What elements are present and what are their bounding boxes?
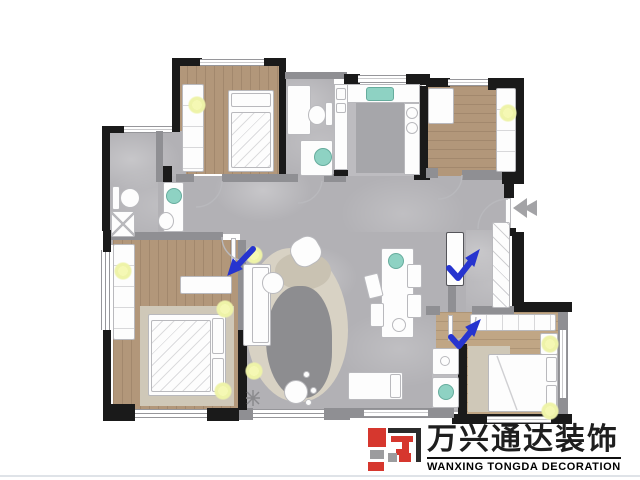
logo-divider-line (427, 457, 621, 459)
washing-machine (111, 211, 135, 237)
window (358, 75, 408, 83)
wall-segment (426, 168, 438, 178)
stove-burner (406, 107, 418, 119)
dresser (180, 276, 232, 294)
wall-segment (103, 404, 135, 421)
wall-segment (458, 344, 467, 416)
bed-pillow (212, 318, 224, 354)
toilet-bowl (120, 188, 140, 208)
ceiling-light-glow (114, 262, 132, 280)
logo-red-square (368, 462, 384, 471)
wall-segment (504, 182, 514, 198)
wall-segment (103, 330, 111, 406)
bed-pillow (546, 357, 557, 382)
wall-segment (426, 306, 440, 315)
tv-bench-end-unit (390, 374, 401, 398)
window (448, 79, 490, 86)
wall-segment (222, 174, 286, 182)
wall-segment (102, 127, 110, 231)
vanity-sink (314, 148, 332, 166)
master-door-leaf (231, 238, 236, 264)
logo-text-block: 万兴通达装饰 WANXING TONGDA DECORATION (427, 424, 621, 473)
company-logo: 万兴通达装饰 WANXING TONGDA DECORATION (368, 424, 636, 476)
sink-faucet (440, 356, 450, 366)
logo-side-squares (368, 428, 386, 471)
window (364, 409, 428, 417)
wall-segment (286, 174, 298, 182)
coffee-table (262, 272, 284, 294)
daybed (428, 88, 454, 124)
table-plant (388, 253, 404, 269)
ceiling-light-glow (216, 300, 234, 318)
dining-chair (407, 294, 422, 318)
bedroom-door-leaf (448, 315, 453, 341)
ceiling-light-glow (499, 104, 517, 122)
toilet-tank (325, 102, 333, 126)
kitchen-island (356, 103, 404, 173)
dining-chair (407, 264, 422, 288)
page-bottom-line (0, 475, 640, 477)
window (200, 59, 264, 66)
table-bowl (392, 318, 406, 332)
logo-mark-gray-square (388, 453, 397, 462)
toilet-bowl (308, 105, 326, 125)
wall-segment (102, 126, 124, 133)
kitchen-sink (366, 87, 394, 101)
built-in-oven (336, 88, 346, 100)
window (134, 409, 207, 418)
window (559, 330, 567, 398)
dining-chair (370, 303, 384, 327)
basin (158, 212, 174, 230)
logo-mark-icon (388, 428, 421, 462)
wardrobe (496, 88, 516, 172)
bed-blanket (231, 112, 271, 168)
decor-dot (310, 387, 317, 394)
company-name-english: WANXING TONGDA DECORATION (427, 461, 621, 473)
ceiling-light-glow (541, 335, 559, 353)
stove-burner (406, 122, 418, 134)
logo-mark-red-square (399, 453, 411, 462)
floor-plan-image: 万兴通达装饰 WANXING TONGDA DECORATION (0, 0, 640, 480)
wall-segment (163, 166, 172, 182)
bed-blanket (151, 320, 211, 392)
logo-red-square (368, 428, 386, 447)
window (252, 409, 324, 418)
ceiling-light-glow (541, 402, 559, 420)
wardrobe (470, 314, 556, 331)
wall-segment (426, 78, 450, 87)
wall-segment (512, 302, 572, 312)
wall-segment (172, 58, 202, 66)
logo-mark-right-bar (416, 428, 421, 462)
wash-basin (166, 188, 182, 204)
decor-dot (303, 371, 310, 378)
entrance-direction-icon (513, 198, 537, 218)
wall-segment (172, 58, 180, 132)
wardrobe (113, 244, 135, 340)
wall-segment (207, 408, 239, 421)
wall-segment (512, 232, 524, 310)
ceiling-light-glow (245, 246, 263, 264)
hallway-cabinet (446, 232, 464, 286)
wall-segment (420, 86, 428, 170)
ceiling-light-glow (188, 96, 206, 114)
hallway-floor (158, 176, 508, 234)
wall-segment (516, 88, 524, 170)
wall-segment (176, 174, 194, 182)
toilet-tank (112, 186, 120, 210)
wall-segment (324, 408, 350, 420)
window (124, 126, 172, 133)
wall-segment (285, 72, 347, 79)
entry-shoe-cabinet (492, 222, 510, 308)
washer-drum (438, 384, 454, 400)
wall-segment (156, 131, 163, 182)
bed-pillow (231, 93, 271, 107)
ceiling-light-glow (245, 362, 263, 380)
wall-segment (103, 230, 111, 252)
wall-segment (448, 284, 456, 312)
decor-dot (305, 399, 312, 406)
window (101, 250, 110, 330)
ceiling-light-glow (214, 382, 232, 400)
company-name-chinese: 万兴通达装饰 (427, 424, 621, 456)
shower-cabinet (287, 85, 311, 135)
built-in-appliance (336, 103, 346, 113)
logo-gray-square (370, 450, 384, 459)
